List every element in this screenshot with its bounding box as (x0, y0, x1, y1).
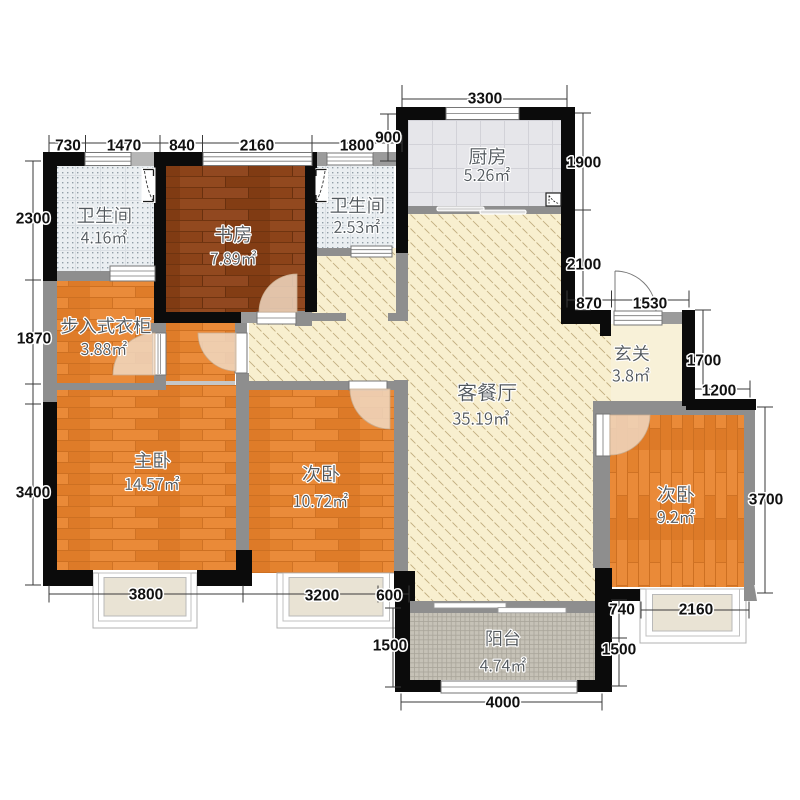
svg-text:1470: 1470 (107, 138, 141, 155)
svg-text:3400: 3400 (16, 485, 50, 502)
svg-text:740: 740 (609, 602, 635, 619)
svg-text:3200: 3200 (305, 588, 339, 605)
svg-text:900: 900 (375, 130, 401, 147)
svg-text:3300: 3300 (468, 91, 502, 108)
svg-text:1700: 1700 (687, 353, 721, 370)
svg-text:2160: 2160 (679, 602, 713, 619)
svg-text:1200: 1200 (702, 383, 736, 400)
svg-text:4000: 4000 (486, 695, 520, 712)
svg-text:2100: 2100 (567, 257, 601, 274)
svg-text:1500: 1500 (602, 642, 636, 659)
svg-text:840: 840 (169, 138, 195, 155)
svg-text:600: 600 (376, 588, 402, 605)
svg-text:870: 870 (576, 296, 602, 313)
svg-text:1800: 1800 (340, 138, 374, 155)
svg-text:3700: 3700 (749, 492, 783, 509)
svg-text:730: 730 (55, 138, 81, 155)
svg-text:1870: 1870 (17, 331, 51, 348)
svg-text:1500: 1500 (373, 638, 407, 655)
svg-text:2300: 2300 (16, 211, 50, 228)
svg-text:3800: 3800 (129, 587, 163, 604)
svg-text:1900: 1900 (567, 155, 601, 172)
svg-text:1530: 1530 (633, 296, 667, 313)
svg-text:2160: 2160 (240, 138, 274, 155)
